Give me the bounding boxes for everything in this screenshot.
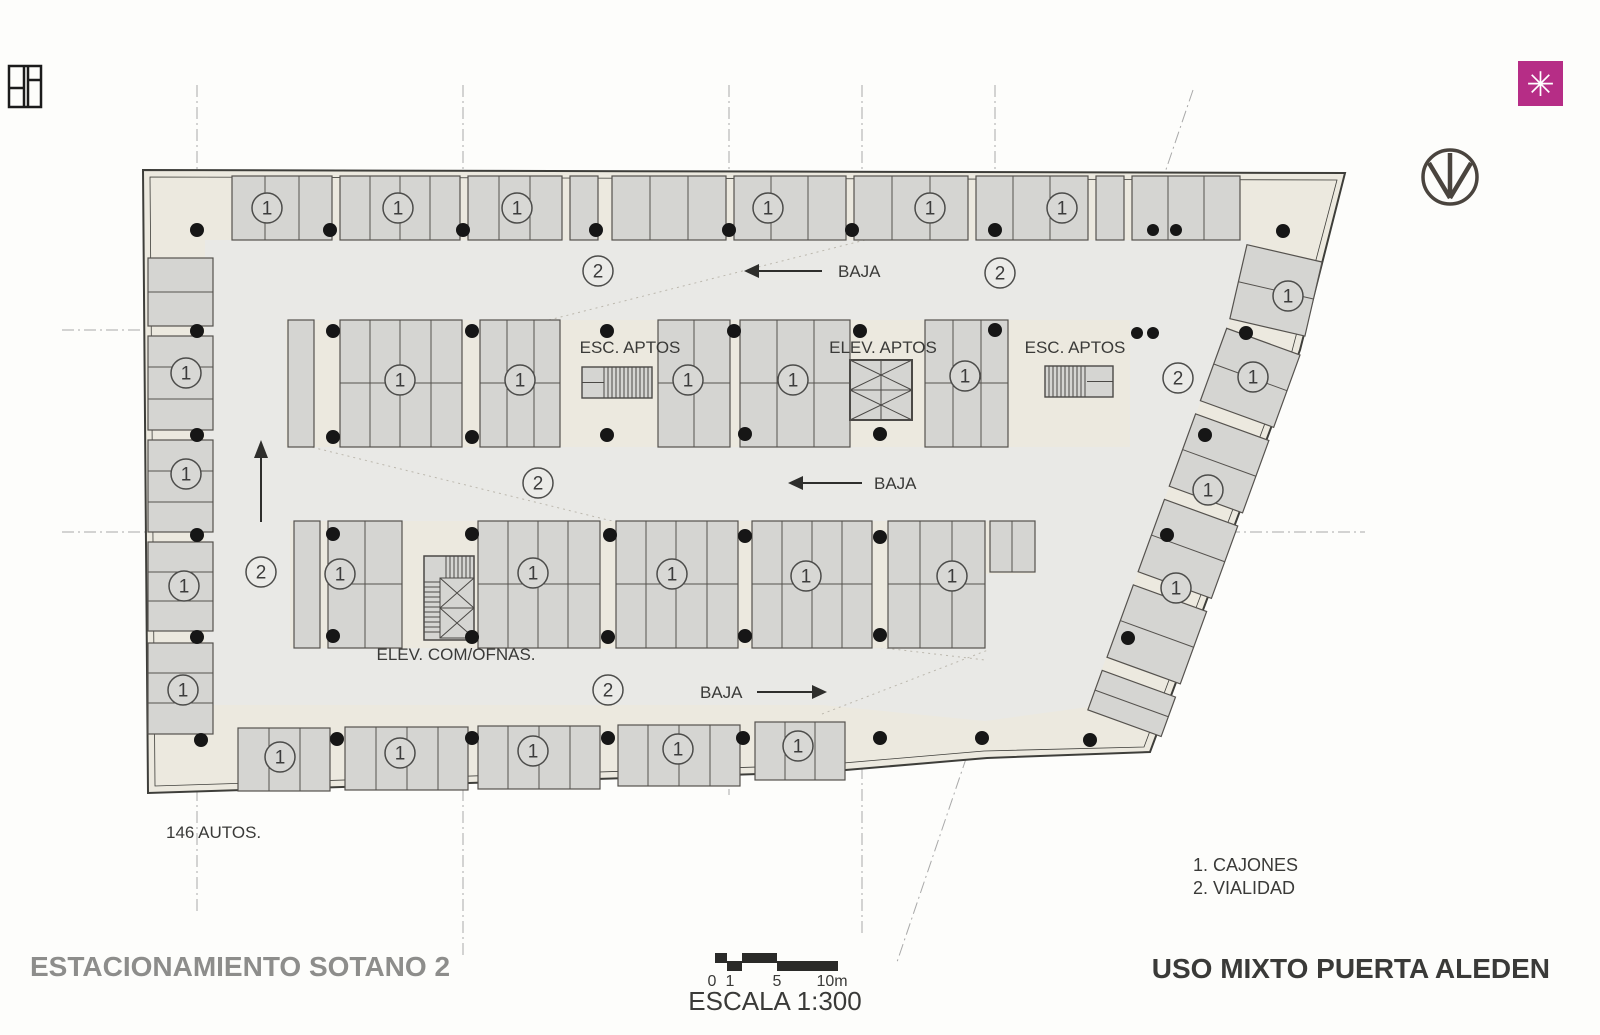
label-baja-top: BAJA	[838, 262, 881, 281]
stall-marker-label: 1	[801, 567, 812, 588]
stall-marker-label: 1	[947, 567, 958, 588]
lane-marker-label: 2	[533, 474, 544, 495]
stall-marker-label: 1	[181, 364, 192, 385]
stall-marker-label: 1	[275, 748, 286, 769]
label-elev-com-ofnas: ELEV. COM/OFNAS.	[376, 645, 535, 664]
stall-marker-label: 1	[181, 465, 192, 486]
lane-marker-label: 2	[593, 262, 604, 283]
stair-symbol-aptos-1	[582, 367, 652, 398]
label-elev-aptos: ELEV. APTOS	[829, 338, 937, 357]
north-arrow-icon	[1423, 150, 1477, 204]
stall-marker-label: 1	[395, 371, 406, 392]
stall-marker-label: 1	[925, 199, 936, 220]
stall-marker-label: 1	[515, 371, 526, 392]
stall-marker-label: 1	[512, 199, 523, 220]
lane-marker-label: 2	[995, 264, 1006, 285]
stall-marker-label: 1	[1283, 287, 1294, 308]
lane-marker-label: 2	[256, 563, 267, 584]
legend-item-cajones: 1. CAJONES	[1193, 855, 1298, 875]
scale-bar: 0 1 5 10m ESCALA 1:300	[688, 953, 861, 1016]
label-baja-bottom: BAJA	[700, 683, 743, 702]
elevator-stair-core-commercial	[424, 556, 474, 640]
label-esc-aptos-2: ESC. APTOS	[1025, 338, 1126, 357]
stall-marker-label: 1	[788, 371, 799, 392]
stall-marker-label: 1	[178, 681, 189, 702]
legend-item-vialidad: 2. VIALIDAD	[1193, 878, 1295, 898]
stall-marker-label: 1	[395, 744, 406, 765]
stall-marker-label: 1	[335, 565, 346, 586]
stair-symbol-aptos-2	[1045, 366, 1113, 397]
stall-marker-label: 1	[528, 564, 539, 585]
drive-lane-area	[205, 240, 1252, 721]
legend: 1. CAJONES 2. VIALIDAD	[1193, 855, 1298, 898]
scale-label: ESCALA 1:300	[688, 986, 861, 1016]
stall-marker-label: 1	[960, 367, 971, 388]
stall-marker-label: 1	[1057, 199, 1068, 220]
stall-marker-label: 1	[1248, 368, 1259, 389]
stall-marker-label: 1	[1171, 579, 1182, 600]
label-esc-aptos-1: ESC. APTOS	[580, 338, 681, 357]
label-baja-middle: BAJA	[874, 474, 917, 493]
stall-marker-label: 1	[262, 199, 273, 220]
floor-plan-drawing: ESC. APTOS ELEV. APTOS ESC. APTOS ELEV. …	[0, 0, 1600, 1035]
floor-plan-sheet: ESC. APTOS ELEV. APTOS ESC. APTOS ELEV. …	[0, 0, 1600, 1035]
lane-marker-label: 2	[603, 681, 614, 702]
sheet-title: ESTACIONAMIENTO SOTANO 2	[30, 951, 450, 982]
project-title: USO MIXTO PUERTA ALEDEN	[1152, 953, 1550, 984]
stall-marker-label: 1	[667, 565, 678, 586]
stall-marker-label: 1	[528, 742, 539, 763]
stall-marker-label: 1	[763, 199, 774, 220]
architect-logo-icon	[9, 66, 41, 107]
stall-marker-label: 1	[673, 740, 684, 761]
stall-marker-label: 1	[1203, 481, 1214, 502]
label-autos-count: 146 AUTOS.	[166, 823, 261, 842]
stall-marker-label: 1	[793, 737, 804, 758]
brand-logo-icon: ✳	[1518, 61, 1563, 106]
stall-marker-label: 1	[683, 371, 694, 392]
stall-marker-label: 1	[179, 577, 190, 598]
brand-logo-glyph: ✳	[1526, 66, 1555, 104]
stall-marker-label: 1	[393, 199, 404, 220]
lane-marker-label: 2	[1173, 369, 1184, 390]
elevator-symbol-aptos	[850, 360, 912, 420]
